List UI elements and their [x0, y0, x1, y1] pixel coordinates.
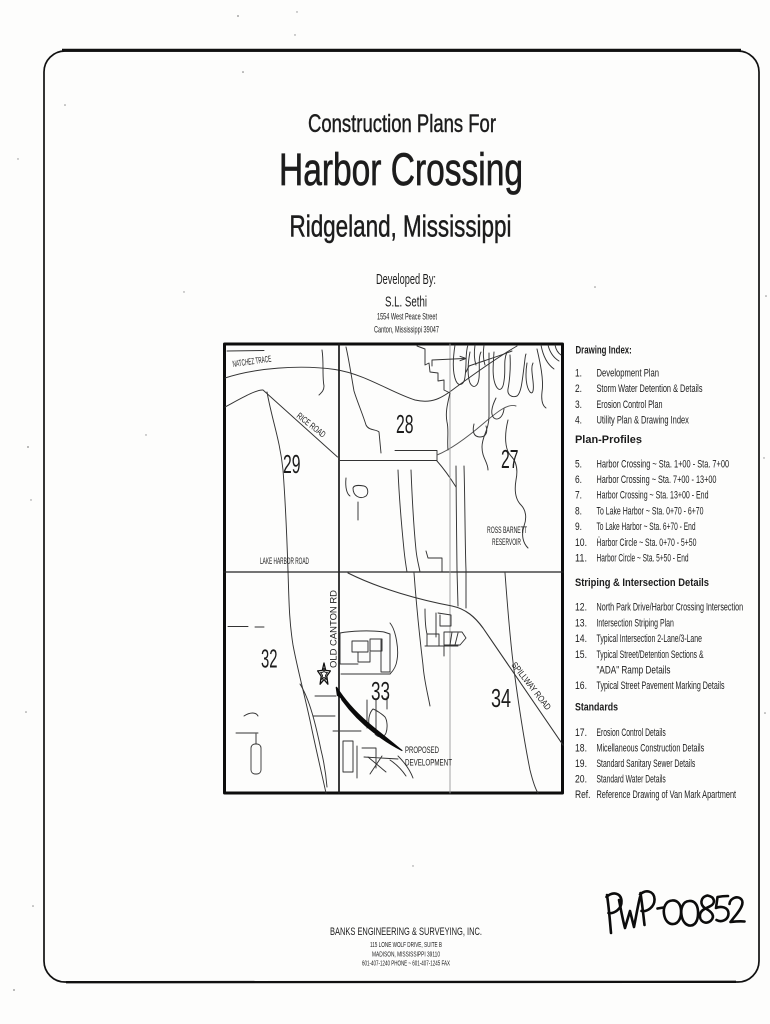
svg-text:Construction Plans For: Construction Plans For: [308, 110, 496, 138]
svg-text:Canton, Mississippi 39047: Canton, Mississippi 39047: [374, 325, 439, 336]
svg-text:Erosion Control Plan: Erosion Control Plan: [597, 399, 663, 411]
svg-text:BANKS ENGINEERING & SURVEYING,: BANKS ENGINEERING & SURVEYING, INC.: [330, 926, 482, 938]
svg-text:5.: 5.: [575, 459, 582, 471]
svg-text:9.: 9.: [575, 521, 582, 533]
svg-text:11.: 11.: [575, 553, 587, 565]
svg-text:To Lake Harbor ~ Sta. 0+70 - 6: To Lake Harbor ~ Sta. 0+70 - 6+70: [597, 506, 704, 518]
svg-text:Harbor Crossing ~ Sta. 7+00 -: Harbor Crossing ~ Sta. 7+00 - 13+00: [597, 474, 717, 486]
svg-text:Standard Water Details: Standard Water Details: [597, 774, 667, 786]
svg-text:13.: 13.: [575, 618, 587, 630]
svg-text:Typical Street Pavement Markin: Typical Street Pavement Marking Details: [597, 680, 725, 692]
svg-text:33: 33: [371, 676, 390, 706]
svg-text:North Park Drive/Harbor Crossi: North Park Drive/Harbor Crossing Interse…: [597, 602, 744, 614]
svg-text:Ridgeland, Mississippi: Ridgeland, Mississippi: [290, 210, 512, 244]
svg-text:MADISON, MISSISSIPPI 39110: MADISON, MISSISSIPPI 39110: [372, 952, 440, 959]
svg-text:3.: 3.: [575, 399, 582, 411]
svg-text:27: 27: [501, 444, 519, 474]
svg-text:Utility Plan & Drawing Index: Utility Plan & Drawing Index: [597, 415, 690, 427]
svg-text:Typical Intersection 2-Lane/3-: Typical Intersection 2-Lane/3-Lane: [597, 633, 702, 645]
svg-text:Harbor Circle ~ Sta. 5+50 - En: Harbor Circle ~ Sta. 5+50 - End: [597, 553, 689, 565]
svg-text:Typical Street/Detention Secti: Typical Street/Detention Sections &: [597, 649, 704, 661]
svg-text:Drawing Index:: Drawing Index:: [576, 345, 632, 357]
svg-text:20.: 20.: [575, 774, 587, 786]
svg-text:12.: 12.: [575, 602, 587, 614]
svg-text:18.: 18.: [575, 743, 587, 755]
svg-text:Micellaneous Construction Deta: Micellaneous Construction Details: [597, 743, 705, 755]
svg-text:34: 34: [491, 683, 511, 713]
svg-text:1554 West Peace Street: 1554 West Peace Street: [377, 312, 437, 323]
svg-text:8.: 8.: [575, 506, 582, 518]
svg-text:601-407-1240 PHONE ~ 601-407-1: 601-407-1240 PHONE ~ 601-407-1245 FAX: [362, 961, 450, 968]
svg-text:To Lake Harbor ~ Sta. 6+70 - E: To Lake Harbor ~ Sta. 6+70 - End: [597, 521, 696, 533]
svg-text:28: 28: [396, 409, 414, 439]
svg-text:ROSS BARNETT: ROSS BARNETT: [487, 525, 527, 535]
svg-text:RESERVOIR: RESERVOIR: [492, 537, 521, 547]
svg-text:S.L. Sethi: S.L. Sethi: [385, 294, 427, 311]
svg-text:Development Plan: Development Plan: [597, 368, 660, 380]
svg-text:17.: 17.: [575, 727, 587, 739]
svg-text:4.: 4.: [575, 415, 582, 427]
svg-text:Plan-Profiles: Plan-Profiles: [575, 434, 642, 446]
svg-text:Erosion Control Details: Erosion Control Details: [597, 727, 667, 739]
svg-text:Intersection Striping Plan: Intersection Striping Plan: [597, 618, 674, 630]
svg-text:15.: 15.: [575, 649, 587, 661]
svg-text:115 LONE WOLF DRIVE, SUITE B: 115 LONE WOLF DRIVE, SUITE B: [370, 942, 442, 949]
svg-text:16.: 16.: [575, 680, 587, 692]
svg-text:19.: 19.: [575, 758, 587, 770]
svg-text:Developed By:: Developed By:: [376, 271, 436, 288]
svg-text:OLD CANTON RD: OLD CANTON RD: [329, 589, 339, 668]
svg-text:29: 29: [283, 449, 301, 479]
svg-text:32: 32: [261, 644, 278, 674]
svg-text:Harbor Crossing ~ Sta. 13+00 -: Harbor Crossing ~ Sta. 13+00 - End: [597, 490, 709, 502]
svg-text:Storm Water Detention & Detail: Storm Water Detention & Details: [597, 383, 703, 395]
svg-text:Reference Drawing of Van Mark: Reference Drawing of Van Mark Apartment: [597, 789, 737, 801]
svg-text:LAKE HARBOR ROAD: LAKE HARBOR ROAD: [260, 556, 309, 566]
svg-text:7.: 7.: [575, 490, 582, 502]
svg-text:PROPOSED: PROPOSED: [405, 745, 439, 756]
svg-text:6.: 6.: [575, 474, 582, 486]
svg-text:Harbor Crossing ~ Sta. 1+00 -: Harbor Crossing ~ Sta. 1+00 - Sta. 7+00: [597, 459, 730, 471]
svg-text:Ref.: Ref.: [575, 789, 591, 801]
svg-text:Harbor Crossing: Harbor Crossing: [279, 144, 523, 195]
svg-text:10.: 10.: [575, 537, 587, 549]
svg-text:DEVELOPMENT: DEVELOPMENT: [405, 758, 452, 769]
svg-text:14.: 14.: [575, 633, 587, 645]
svg-text:2.: 2.: [575, 383, 582, 395]
svg-text:Harbor Circle ~ Sta. 0+70 - 5+: Harbor Circle ~ Sta. 0+70 - 5+50: [597, 537, 697, 549]
svg-text:Standard Sanitary Sewer Detail: Standard Sanitary Sewer Details: [597, 758, 696, 770]
svg-text:1.: 1.: [575, 368, 582, 380]
svg-text:"ADA" Ramp Details: "ADA" Ramp Details: [597, 665, 671, 677]
svg-text:Standards: Standards: [575, 702, 618, 714]
svg-text:Striping & Intersection Detail: Striping & Intersection Details: [575, 577, 709, 589]
